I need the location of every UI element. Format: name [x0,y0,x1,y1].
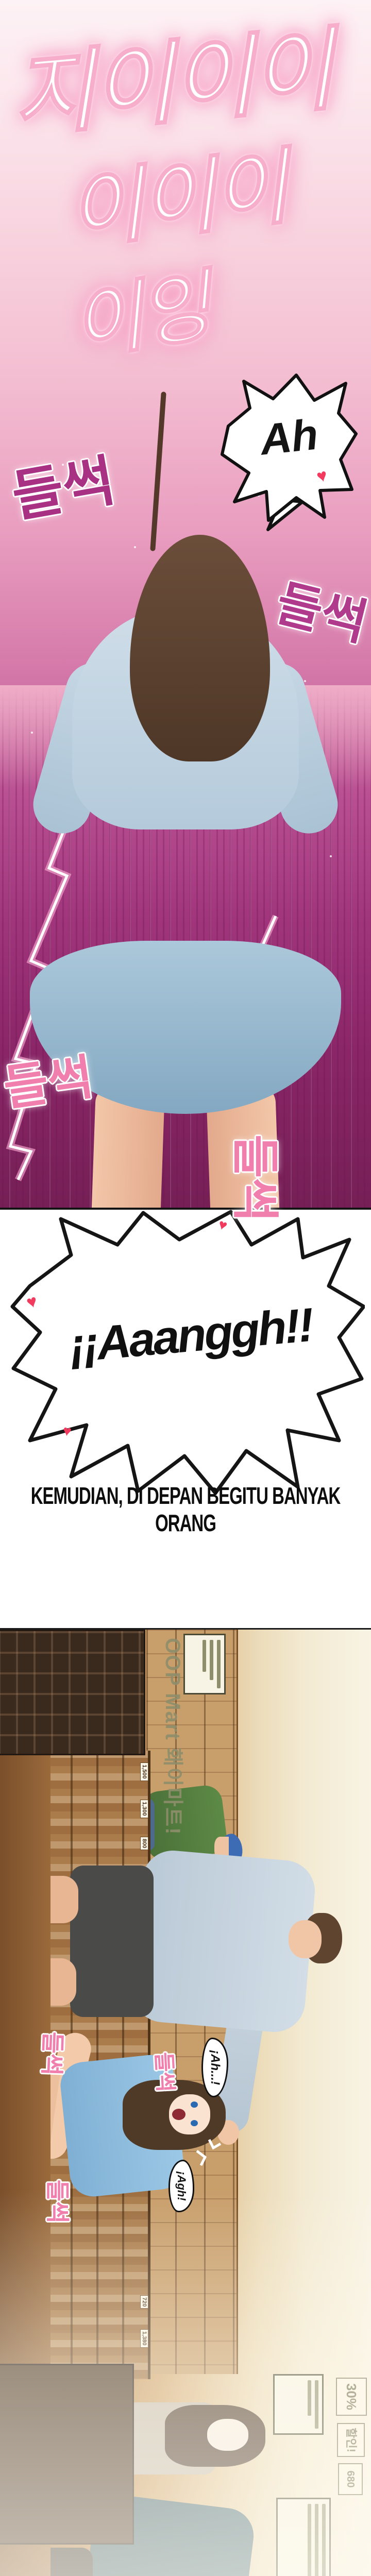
rotated-store-scene: 1,500 1,300 800 720 1,380 OOP Mart 홰이마트! [0,1630,371,2576]
sfx-deulsseok: 들썩 [36,2031,72,2076]
panel-1-artwork: 지이이이 이이이 이잉 들썩 들썩 들썩 [0,0,371,1210]
neon-sfx-line-1: 지이이이 [6,0,336,155]
sfx-deulsseok: 들썩 [0,1038,97,1120]
sfx-deulsseok: 들썩 [270,563,371,655]
figure-hair-strand [150,392,166,551]
webtoon-page: 지이이이 이이이 이잉 들썩 들썩 들썩 들썩 Ah ♥ [0,0,371,2576]
caption-1: KEMUDIAN, DI DEPAN BEGITU BANYAK ORANG [0,1482,371,1537]
sfx-deulsseok: 들썩 [176,1134,279,1182]
sfx-deulsseok: 들썩 [149,2051,183,2092]
right-wall-light [0,1630,371,2576]
figure-hair [130,535,270,761]
neon-sfx-line-2: 이이이 [60,120,292,265]
neon-sfx-line-3: 이잉 [63,244,215,376]
speech-bubble-agh: ¡Agh! [168,2160,194,2212]
sfx-deulsseok: 들썩 [42,2180,76,2224]
sfx-deulsseok: 들썩 [5,436,120,533]
panel-2-artwork: 1,500 1,300 800 720 1,380 OOP Mart 홰이마트! [0,1628,371,2576]
speech-bubble-ah-text: Ah [258,409,321,465]
